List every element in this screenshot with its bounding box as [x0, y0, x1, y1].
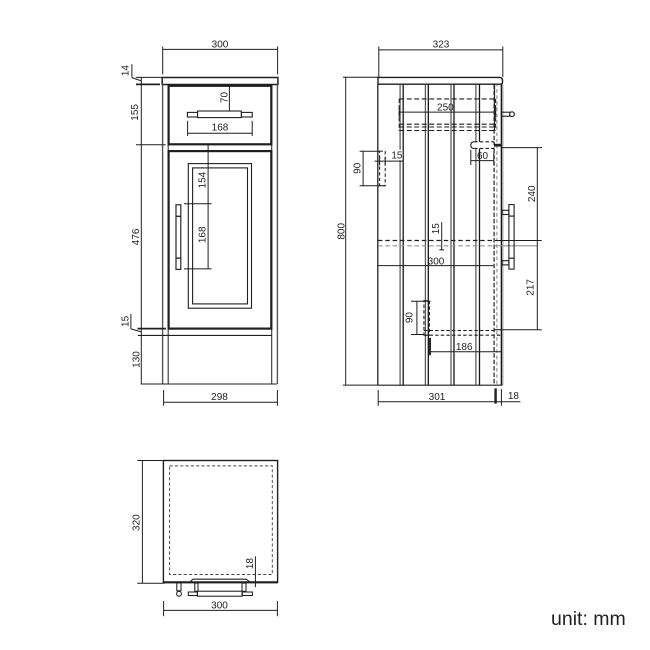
- svg-text:217: 217: [525, 279, 536, 296]
- svg-text:300: 300: [212, 40, 229, 51]
- svg-text:186: 186: [456, 342, 473, 353]
- svg-text:323: 323: [433, 40, 450, 51]
- svg-text:90: 90: [405, 312, 416, 324]
- svg-text:320: 320: [132, 514, 143, 531]
- svg-text:unit: mm: unit: mm: [551, 608, 626, 630]
- svg-text:300: 300: [428, 257, 445, 268]
- svg-text:250: 250: [437, 103, 454, 114]
- svg-text:168: 168: [198, 226, 209, 243]
- svg-text:15: 15: [121, 315, 132, 327]
- svg-text:301: 301: [429, 392, 446, 403]
- svg-text:15: 15: [431, 223, 442, 235]
- svg-text:168: 168: [212, 123, 229, 134]
- svg-text:15: 15: [391, 151, 403, 162]
- svg-text:476: 476: [131, 228, 142, 245]
- svg-text:60: 60: [477, 151, 489, 162]
- svg-text:14: 14: [121, 65, 132, 77]
- svg-text:800: 800: [337, 223, 348, 240]
- svg-text:70: 70: [219, 92, 230, 104]
- svg-text:240: 240: [527, 185, 538, 202]
- svg-text:300: 300: [211, 600, 228, 611]
- svg-text:18: 18: [508, 391, 520, 402]
- svg-text:18: 18: [245, 558, 256, 570]
- svg-text:130: 130: [132, 351, 143, 368]
- svg-text:155: 155: [130, 104, 141, 121]
- svg-text:90: 90: [352, 162, 363, 174]
- svg-text:154: 154: [198, 171, 209, 188]
- svg-text:298: 298: [211, 392, 228, 403]
